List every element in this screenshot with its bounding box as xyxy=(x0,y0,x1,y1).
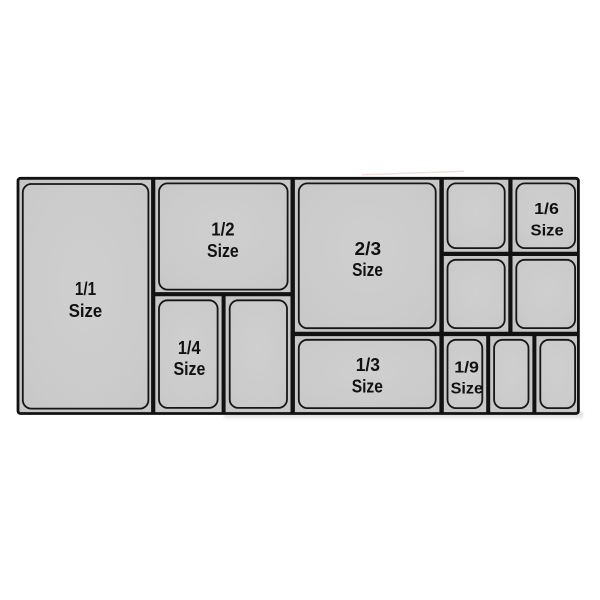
svg-text:1/4: 1/4 xyxy=(178,338,201,358)
svg-text:Size: Size xyxy=(207,241,239,261)
svg-text:1/3: 1/3 xyxy=(356,355,380,375)
svg-text:1/1: 1/1 xyxy=(75,279,96,299)
svg-text:Size: Size xyxy=(352,377,383,397)
svg-text:Size: Size xyxy=(531,223,565,240)
svg-text:2/3: 2/3 xyxy=(355,239,382,259)
svg-text:Size: Size xyxy=(69,301,102,321)
svg-text:Size: Size xyxy=(352,260,383,280)
svg-text:1/6: 1/6 xyxy=(534,201,559,218)
svg-text:1/9: 1/9 xyxy=(454,359,479,376)
svg-text:1/2: 1/2 xyxy=(211,219,234,239)
svg-text:Size: Size xyxy=(173,359,205,379)
svg-text:Size: Size xyxy=(451,380,484,397)
